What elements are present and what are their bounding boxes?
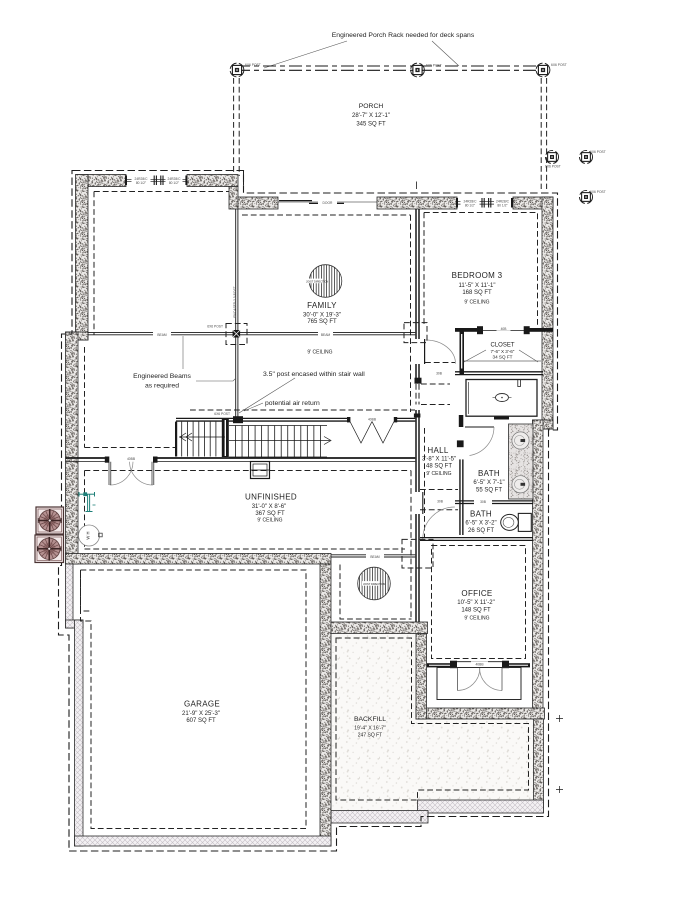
- svg-text:as required: as required: [145, 383, 179, 390]
- svg-text:607 SQ FT: 607 SQ FT: [186, 718, 216, 724]
- svg-text:9' CEILING: 9' CEILING: [307, 350, 332, 356]
- svg-text:potential air return: potential air return: [265, 400, 320, 407]
- svg-text:765 SQ FT: 765 SQ FT: [307, 319, 337, 325]
- svg-text:40BB: 40BB: [368, 417, 377, 421]
- svg-text:30'-0" X 19'-3": 30'-0" X 19'-3": [303, 313, 341, 319]
- svg-text:40BB: 40BB: [475, 662, 484, 666]
- svg-text:28'-7" X 12'-1": 28'-7" X 12'-1": [352, 113, 390, 119]
- svg-text:FAMILY: FAMILY: [307, 301, 337, 310]
- svg-text:247 SQ FT: 247 SQ FT: [358, 733, 382, 739]
- svg-text:30B: 30B: [436, 372, 443, 376]
- svg-text:JOIST DIRECTION: JOIST DIRECTION: [363, 582, 385, 586]
- svg-text:34 SQ FT: 34 SQ FT: [493, 355, 513, 360]
- svg-text:BACKFILL: BACKFILL: [354, 716, 386, 723]
- svg-text:6'-5" X 7'-1": 6'-5" X 7'-1": [473, 480, 504, 486]
- svg-text:3'-8" X 11'-5": 3'-8" X 11'-5": [422, 457, 456, 463]
- svg-text:367 SQ FT: 367 SQ FT: [255, 511, 285, 517]
- svg-text:9' CEILING: 9' CEILING: [464, 300, 489, 306]
- svg-text:10'-5" X 11'-2": 10'-5" X 11'-2": [457, 600, 494, 606]
- svg-text:55 SQ FT: 55 SQ FT: [476, 488, 502, 494]
- svg-text:21'-9" X 25'-3": 21'-9" X 25'-3": [182, 711, 220, 717]
- svg-text:PORCH: PORCH: [359, 103, 384, 110]
- svg-text:HALL: HALL: [427, 446, 448, 455]
- svg-text:UNFINISHED: UNFINISHED: [245, 493, 297, 502]
- svg-text:Engineered Porch Rack needed f: Engineered Porch Rack needed for deck sp…: [332, 32, 475, 39]
- svg-text:6X6 POST: 6X6 POST: [590, 190, 606, 194]
- svg-text:W H: W H: [86, 531, 91, 539]
- svg-text:6X6 POST: 6X6 POST: [551, 63, 567, 67]
- svg-text:40BB: 40BB: [127, 457, 136, 461]
- svg-text:30B: 30B: [437, 500, 444, 504]
- svg-text:6X6 POST: 6X6 POST: [214, 412, 230, 416]
- svg-text:6X6 POST: 6X6 POST: [545, 165, 561, 169]
- svg-text:168 SQ FT: 168 SQ FT: [462, 290, 492, 296]
- svg-text:BATH: BATH: [470, 510, 492, 519]
- svg-text:6X6 POST: 6X6 POST: [590, 150, 606, 154]
- svg-text:BEAM: BEAM: [370, 555, 380, 559]
- svg-text:6'-5" X 3'-2": 6'-5" X 3'-2": [465, 521, 496, 527]
- svg-text:30B: 30B: [480, 500, 487, 504]
- svg-text:80 1/2": 80 1/2": [465, 204, 476, 208]
- svg-text:80 1/2": 80 1/2": [136, 181, 147, 185]
- svg-text:6X6 POST: 6X6 POST: [207, 325, 223, 329]
- svg-text:OFFICE: OFFICE: [461, 589, 492, 598]
- svg-text:BEAM: BEAM: [321, 333, 331, 337]
- svg-text:9' CEILING: 9' CEILING: [464, 616, 489, 622]
- svg-text:6X6 POST: 6X6 POST: [426, 64, 442, 68]
- svg-text:80 1/2": 80 1/2": [497, 204, 508, 208]
- svg-text:31'-0" X 8'-6": 31'-0" X 8'-6": [252, 504, 287, 510]
- svg-text:BEAM: BEAM: [157, 333, 167, 337]
- svg-text:48 SQ FT: 48 SQ FT: [426, 464, 452, 470]
- svg-text:Engineered Beams: Engineered Beams: [133, 373, 191, 380]
- svg-text:26 SQ FT: 26 SQ FT: [468, 528, 494, 534]
- svg-text:9' CEILING: 9' CEILING: [257, 518, 282, 524]
- svg-text:80 1/2": 80 1/2": [169, 181, 180, 185]
- svg-text:11'-5" X 11'-1": 11'-5" X 11'-1": [458, 283, 495, 289]
- svg-text:3.5" post encased within stair: 3.5" post encased within stair wall: [263, 371, 365, 378]
- svg-text:BEDROOM 3: BEDROOM 3: [452, 271, 503, 280]
- svg-text:CLOSET: CLOSET: [490, 343, 514, 349]
- svg-text:BATH: BATH: [478, 469, 500, 478]
- svg-text:148 SQ FT: 148 SQ FT: [461, 608, 491, 614]
- svg-text:DOOR: DOOR: [323, 201, 334, 205]
- svg-text:7'-6" X 3'-6": 7'-6" X 3'-6": [491, 349, 515, 354]
- svg-text:ENCASED 3.5 POST: ENCASED 3.5 POST: [233, 286, 237, 317]
- svg-text:GARAGE: GARAGE: [184, 700, 220, 709]
- svg-text:19'-4" X 16'-7": 19'-4" X 16'-7": [354, 726, 386, 732]
- svg-text:40B: 40B: [501, 327, 508, 331]
- svg-text:6X6 POST: 6X6 POST: [245, 63, 261, 67]
- svg-text:JOIST DIRECTION: JOIST DIRECTION: [306, 279, 328, 283]
- svg-text:345 SQ FT: 345 SQ FT: [356, 122, 386, 128]
- svg-text:9' CEILING: 9' CEILING: [426, 471, 451, 477]
